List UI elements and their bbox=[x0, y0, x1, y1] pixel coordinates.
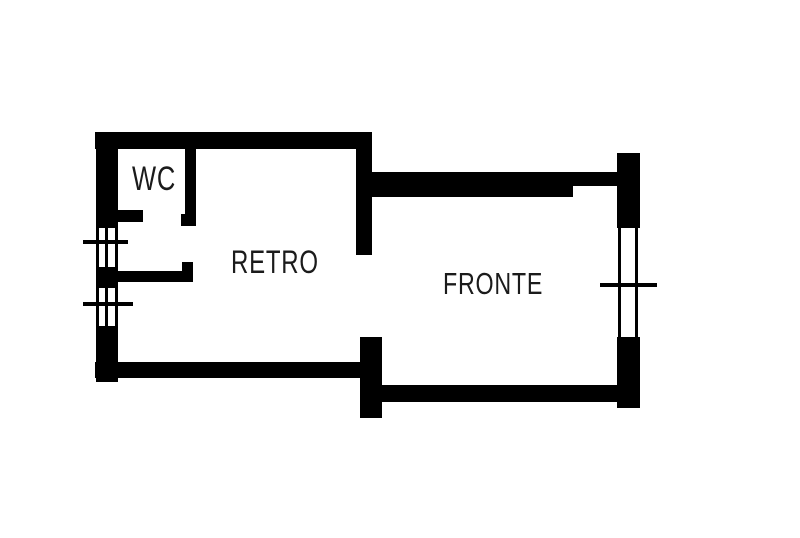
left-window-upper-frame-0 bbox=[96, 228, 99, 267]
fronte-top-wall-recess bbox=[573, 172, 618, 186]
left-window-lower-frame-0 bbox=[96, 288, 99, 326]
floorplan-canvas: WC RETRO FRONTE bbox=[0, 0, 800, 538]
retro-fronte-divider-wall bbox=[356, 132, 372, 255]
entry-pillar bbox=[360, 337, 382, 418]
left-window-lower-tick bbox=[83, 302, 133, 306]
floorplan-page: WC RETRO FRONTE bbox=[0, 0, 800, 538]
room-label-wc: WC bbox=[132, 162, 176, 196]
room-label-retro: RETRO bbox=[231, 246, 319, 278]
right-window-tick bbox=[600, 283, 657, 287]
storage-wall-stub bbox=[182, 262, 193, 274]
left-window-upper-frame-1 bbox=[105, 228, 108, 267]
left-window-lower-frame-1 bbox=[105, 288, 108, 326]
fronte-top-wall bbox=[372, 172, 573, 197]
room-label-fronte: FRONTE bbox=[443, 268, 543, 299]
top-wall bbox=[95, 132, 372, 149]
wc-right-wall-foot bbox=[181, 214, 196, 226]
storage-bottom-wall bbox=[99, 271, 193, 282]
left-window-lower-frame-2 bbox=[115, 288, 118, 326]
wc-bottom-wall bbox=[99, 210, 143, 222]
retro-bottom-wall bbox=[95, 362, 360, 378]
left-window-upper-tick bbox=[83, 240, 128, 244]
fronte-bottom-wall bbox=[382, 385, 618, 402]
left-window-upper-frame-2 bbox=[115, 228, 118, 267]
